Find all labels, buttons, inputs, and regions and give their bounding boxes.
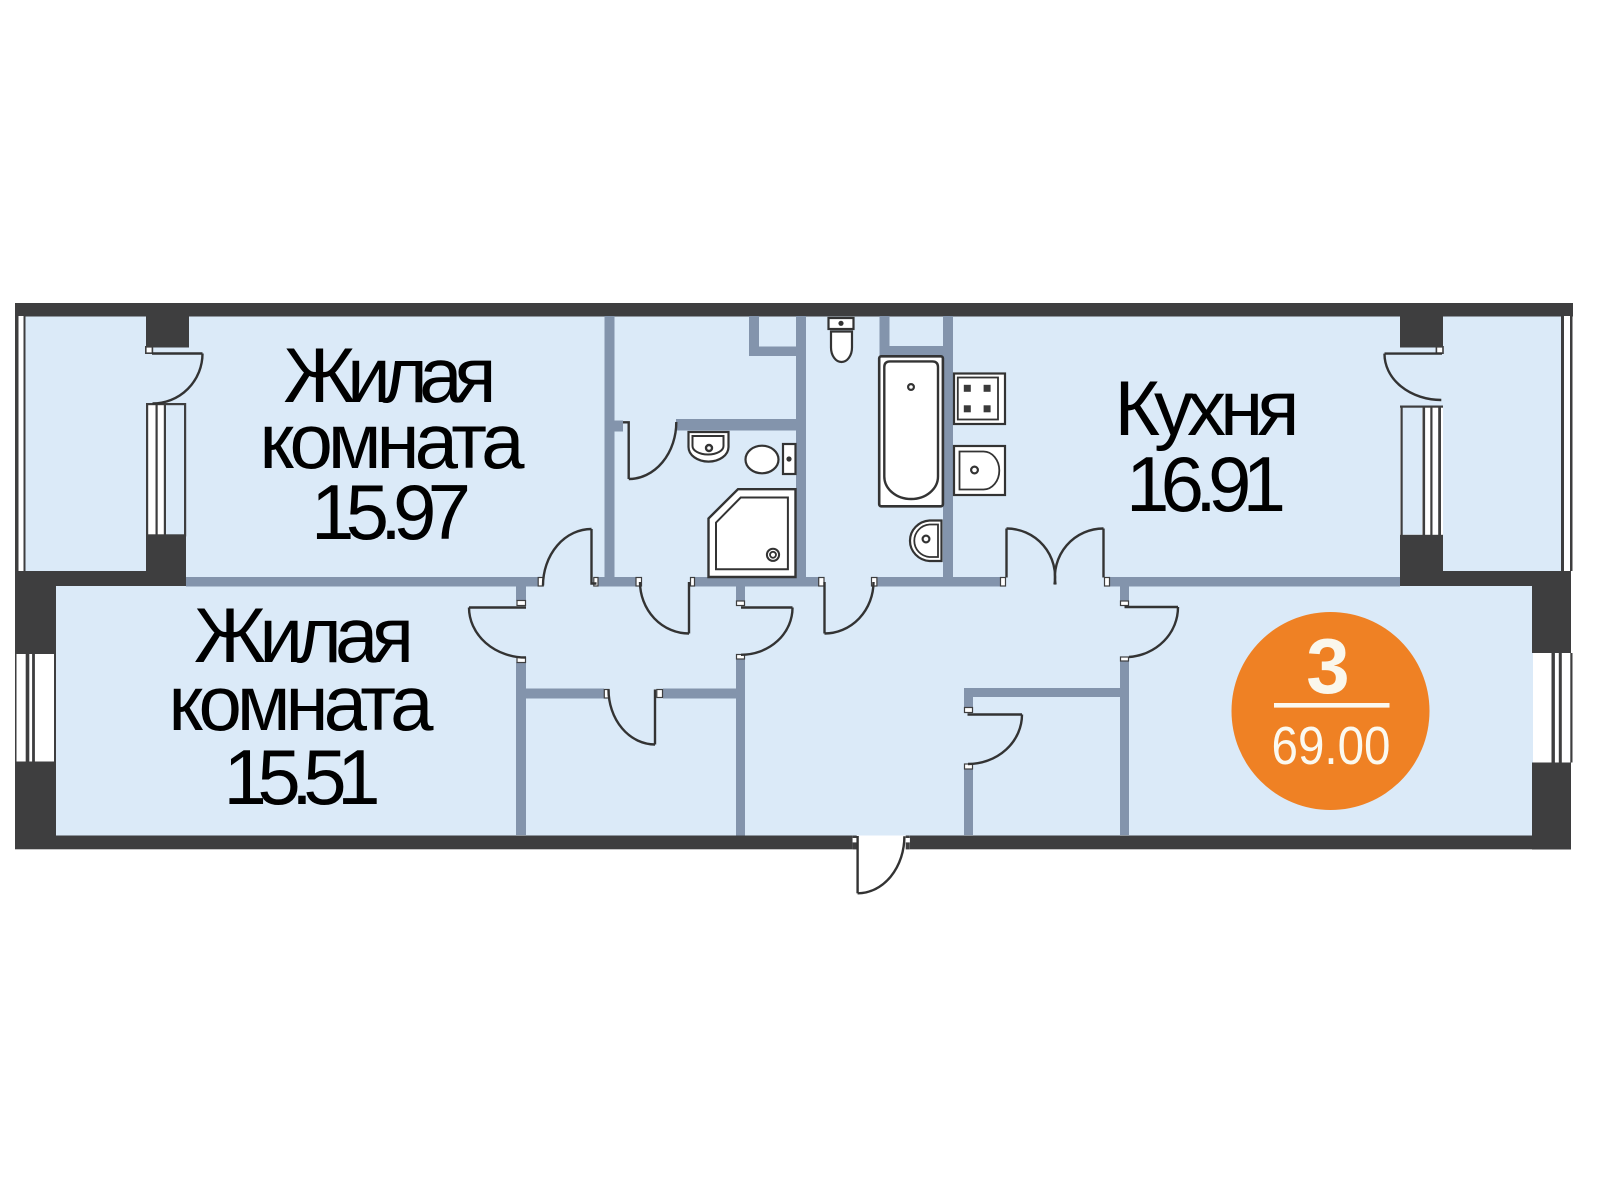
svg-text:Кухня: Кухня xyxy=(1115,364,1300,452)
svg-text:15.51: 15.51 xyxy=(224,733,381,821)
svg-text:3: 3 xyxy=(1306,622,1349,710)
svg-text:16.91: 16.91 xyxy=(1126,440,1286,528)
svg-text:15.97: 15.97 xyxy=(311,468,471,556)
svg-text:69.00: 69.00 xyxy=(1272,716,1391,776)
